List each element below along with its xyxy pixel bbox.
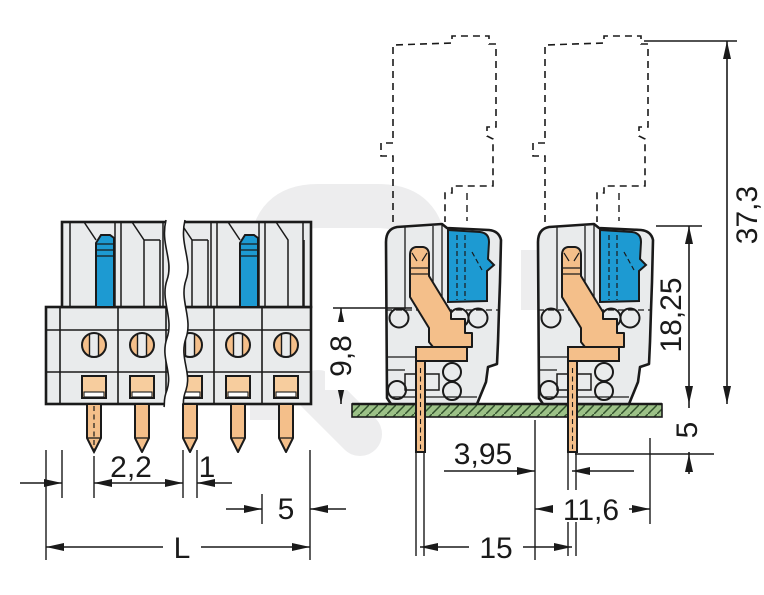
dim-label-pin-to-front: 3,95 <box>454 438 512 471</box>
dim-label-total-length: L <box>174 532 191 565</box>
pcb-board <box>352 404 662 417</box>
dim-label-pin-spacing: 15 <box>479 532 512 565</box>
dim-label-housing-height: 18,25 <box>655 277 688 352</box>
dim-label-pin-below-board: 5 <box>671 422 704 439</box>
dim-label-housing-depth: 11,6 <box>563 494 619 527</box>
dim-label-last-pitch: 5 <box>278 493 295 526</box>
dim-label-pin-group-width: 2,2 <box>110 451 152 484</box>
terminal-block-dimension-drawing: 2,2 1 5 L 3,95 11,6 15 9,8 18,25 37,3 5 <box>0 0 764 595</box>
technical-drawing-page: 2,2 1 5 L 3,95 11,6 15 9,8 18,25 37,3 5 <box>0 0 764 595</box>
dim-label-pin-width: 1 <box>199 451 216 484</box>
dim-label-height-above-board: 9,8 <box>325 335 358 377</box>
plug-outline-2 <box>533 36 648 222</box>
dim-label-overall-height: 37,3 <box>731 186 764 244</box>
